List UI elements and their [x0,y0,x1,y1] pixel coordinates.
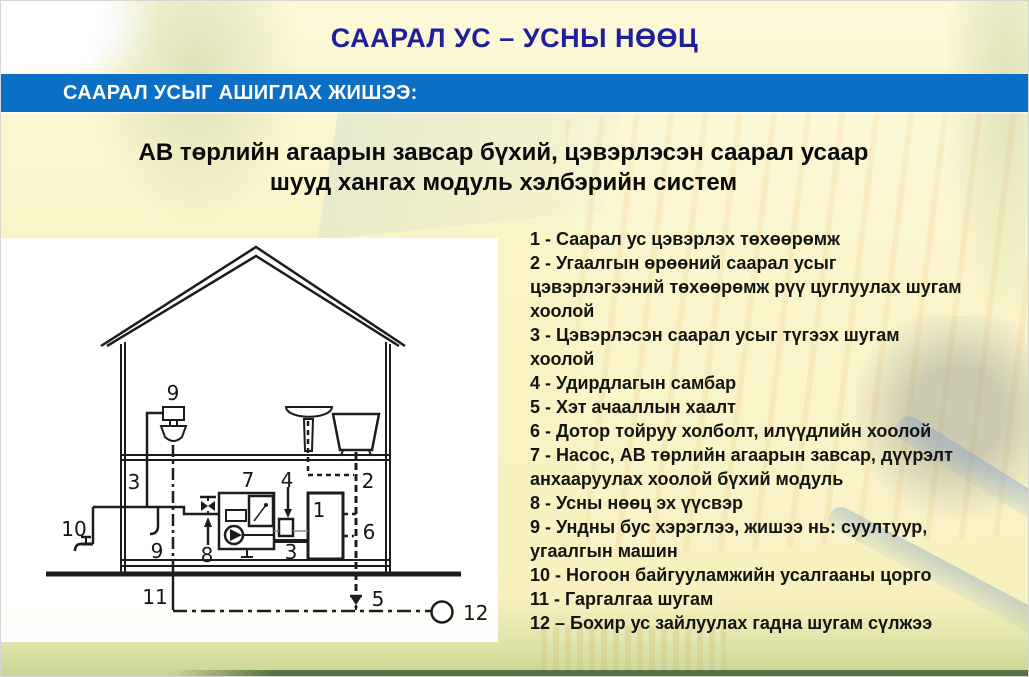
legend-item: 3 - Цэвэрлэсэн саарал усыг түгээх шугам … [530,323,1029,371]
label-bypass: 6 [363,520,376,544]
bathtub-icon [333,414,379,456]
legend-item: 6 - Дотор тойруу холболт, илүүдлийн хоол… [530,419,1029,443]
section-banner-label: СААРАЛ УСЫГ АШИГЛАХ ЖИШЭЭ: [63,74,418,112]
label-control-panel: 4 [281,468,294,492]
slide-title: СААРАЛ УС – УСНЫ НӨӨЦ [1,23,1028,54]
section-banner: СААРАЛ УСЫГ АШИГЛАХ ЖИШЭЭ: [1,74,1028,112]
label-reserve-source: 8 [201,543,214,567]
legend-list: 1 - Саарал ус цэвэрлэх төхөөрөмж 2 - Уга… [530,227,1029,635]
legend-item: 4 - Удирдлагын самбар [530,371,1029,395]
pump-module [219,493,274,557]
label-nonpotable-outlet: 9 [151,539,164,563]
legend-item: 10 - Ногоон байгууламжийн усалгааны цорг… [530,563,1029,587]
label-overload-valve: 5 [372,587,385,611]
outlet-hook [150,507,158,534]
label-sewer-network: 12 [463,601,488,625]
legend-item: 12 – Бохир ус зайлуулах гадна шугам сүлж… [530,611,1029,635]
legend-item: 7 - Насос, АВ төрлийн агаарын завсар, дү… [530,443,1029,491]
reserve-valve [200,497,216,545]
label-collector-pipe: 2 [362,469,375,493]
house-diagram-panel: 9 3 7 4 2 1 6 8 9 3 10 11 5 12 [1,238,498,642]
legend-item: 5 - Хэт ачааллын хаалт [530,395,1029,419]
slide-heading: АВ төрлийн агаарын завсар бүхий, цэвэрлэ… [1,138,1006,198]
label-distribution-upper: 3 [128,470,141,494]
sink-icon [286,407,332,451]
sewer-connection [432,602,453,623]
label-discharge-line: 11 [142,585,167,609]
legend-item: 8 - Усны нөөц эх үүсвэр [530,491,1029,515]
label-garden-tap: 10 [61,517,86,541]
discharge-pipes [173,445,431,611]
label-distribution-lower: 3 [285,540,298,564]
legend-item: 11 - Гаргалгаа шугам [530,587,1029,611]
label-toilet: 9 [167,381,180,405]
control-sensor [274,487,308,536]
legend-item: 2 - Угаалгын өрөөний саарал усыг цэвэрлэ… [530,251,1029,323]
label-tank: 1 [313,498,326,522]
house-diagram: 9 3 7 4 2 1 6 8 9 3 10 11 5 12 [1,238,498,642]
presentation-slide: СААРАЛ УС – УСНЫ НӨӨЦ СААРАЛ УСЫГ АШИГЛА… [0,0,1029,677]
legend-item: 1 - Саарал ус цэвэрлэх төхөөрөмж [530,227,1029,251]
bg-ground-strip [171,670,1029,676]
label-module: 7 [242,468,255,492]
overload-valve [350,596,362,610]
legend-item: 9 - Ундны бус хэрэглээ, жишээ нь: суулту… [530,515,1029,563]
